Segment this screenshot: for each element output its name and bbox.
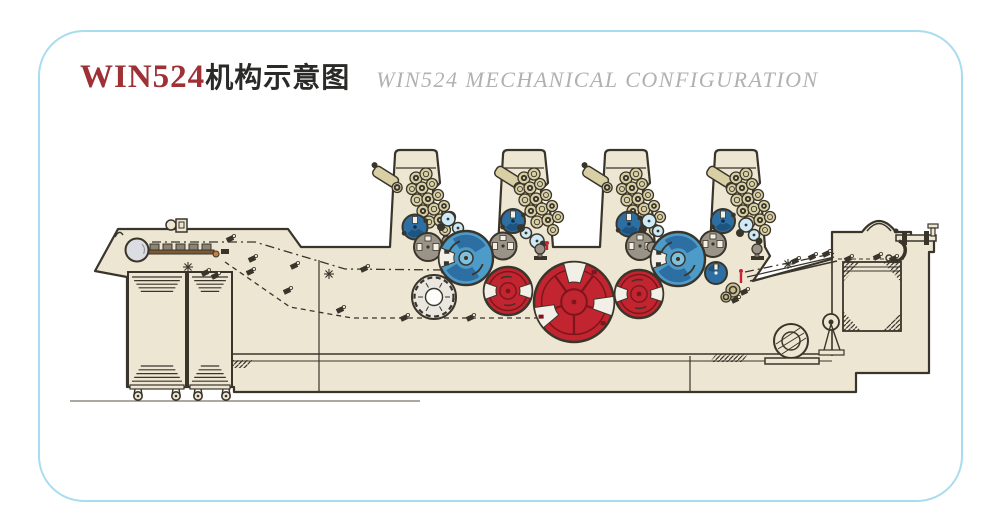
blanket-cylinder-1 (439, 231, 493, 285)
transfer-drum (412, 275, 456, 319)
delivery-cylinder (705, 262, 727, 284)
roller-dark (517, 224, 525, 232)
dampening-roller (653, 226, 664, 237)
roller-dark (736, 229, 744, 237)
page: WIN524机构示意图WIN524 MECHANICAL CONFIGURATI… (0, 0, 1000, 532)
roller-dark (437, 223, 445, 231)
impression-cylinder-2 (615, 270, 663, 318)
roller-small (752, 244, 762, 254)
roller-small (535, 244, 545, 254)
impression-cylinder-1 (484, 267, 532, 315)
plate-cylinder-4 (710, 209, 736, 233)
distributor-cylinder-1 (414, 233, 442, 261)
machine-diagram (0, 0, 1000, 532)
blanket-cylinder-2 (651, 232, 705, 286)
feeder-suction-drum (126, 239, 149, 262)
delivery-roller (721, 292, 731, 302)
central-transfer-cylinder (534, 262, 614, 342)
roller-dark (639, 225, 647, 233)
